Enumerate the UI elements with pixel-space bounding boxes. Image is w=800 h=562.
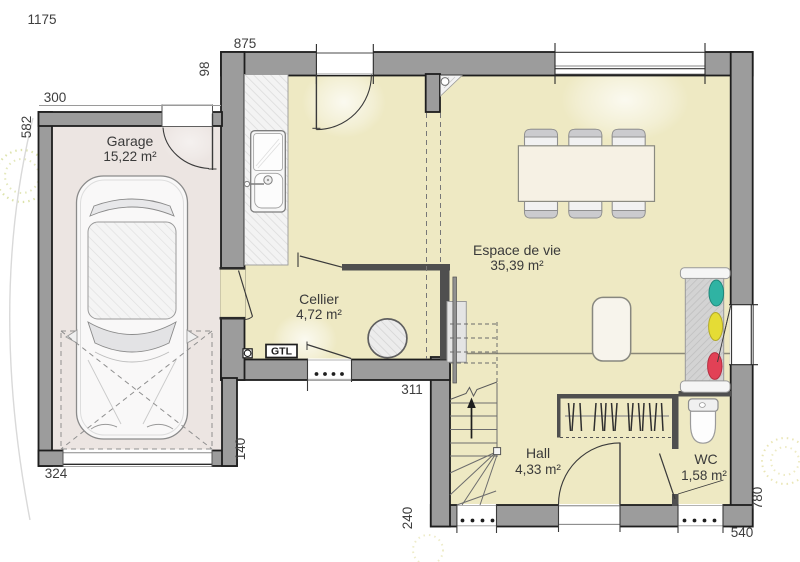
svg-text:Cellier: Cellier — [299, 291, 339, 307]
svg-text:1,58 m²: 1,58 m² — [681, 468, 727, 483]
svg-text:15,22 m²: 15,22 m² — [103, 149, 157, 164]
svg-text:Hall: Hall — [526, 445, 550, 461]
svg-text:1175: 1175 — [27, 12, 56, 27]
svg-text:Garage: Garage — [107, 133, 154, 149]
svg-text:240: 240 — [400, 507, 415, 530]
svg-text:875: 875 — [234, 36, 257, 51]
svg-text:4,33 m²: 4,33 m² — [515, 462, 561, 477]
svg-text:540: 540 — [731, 525, 754, 540]
svg-text:35,39 m²: 35,39 m² — [490, 258, 544, 273]
svg-text:582: 582 — [19, 116, 34, 139]
svg-text:GTL: GTL — [271, 346, 293, 358]
svg-text:98: 98 — [197, 61, 212, 76]
svg-text:311: 311 — [401, 382, 423, 397]
svg-text:780: 780 — [750, 487, 765, 510]
svg-text:4,72 m²: 4,72 m² — [296, 307, 342, 322]
svg-text:WC: WC — [694, 451, 717, 467]
svg-text:324: 324 — [45, 466, 68, 481]
svg-text:300: 300 — [44, 90, 67, 105]
svg-text:Espace de vie: Espace de vie — [473, 242, 561, 258]
svg-text:140: 140 — [233, 438, 248, 461]
